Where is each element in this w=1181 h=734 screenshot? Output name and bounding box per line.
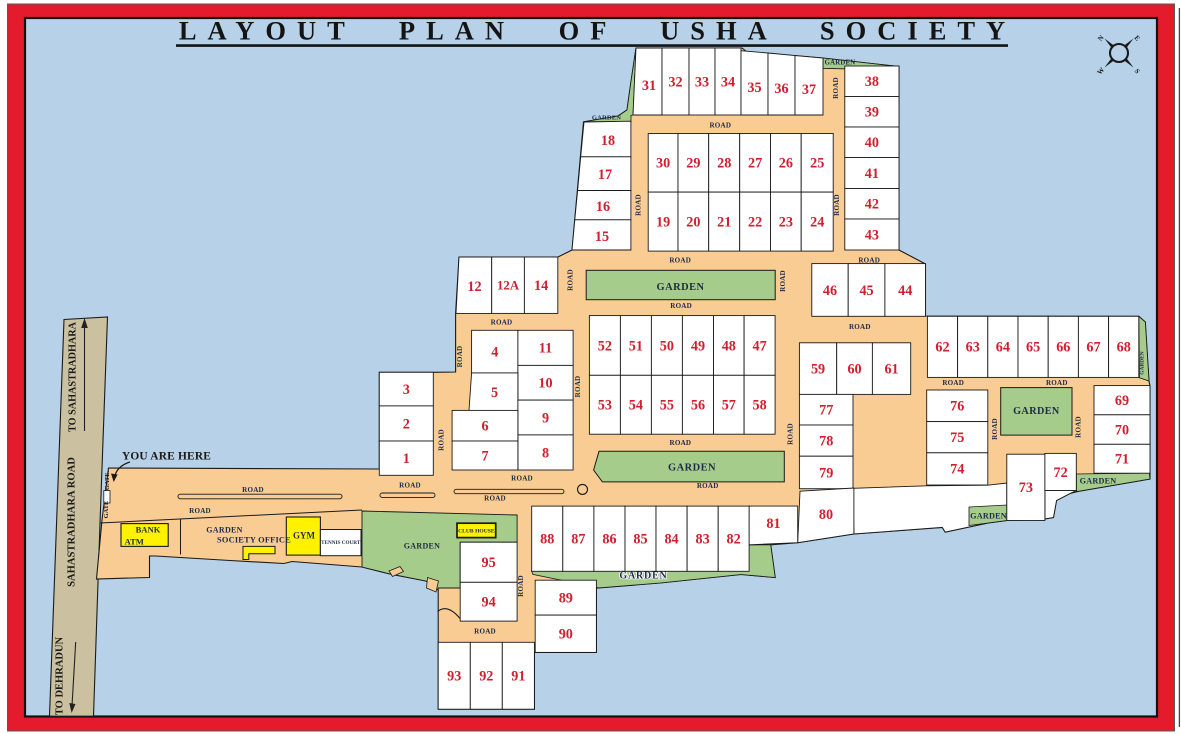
svg-text:ROAD: ROAD bbox=[942, 379, 964, 387]
svg-text:86: 86 bbox=[602, 532, 616, 548]
svg-text:55: 55 bbox=[660, 398, 674, 414]
svg-text:ROAD: ROAD bbox=[574, 376, 582, 398]
svg-text:66: 66 bbox=[1056, 340, 1070, 356]
svg-text:56: 56 bbox=[691, 398, 705, 414]
svg-text:SOCIETY OFFICE: SOCIETY OFFICE bbox=[217, 536, 291, 545]
svg-text:LAYOUT PLAN OF USHA SOCIETY: LAYOUT PLAN OF USHA SOCIETY bbox=[179, 16, 1016, 46]
svg-text:2: 2 bbox=[403, 416, 410, 432]
svg-text:ROAD: ROAD bbox=[484, 495, 506, 503]
svg-text:84: 84 bbox=[664, 532, 678, 548]
svg-text:TO DEHRADUN: TO DEHRADUN bbox=[55, 636, 66, 715]
svg-text:7: 7 bbox=[481, 448, 488, 464]
svg-text:GARDEN: GARDEN bbox=[1080, 477, 1117, 486]
svg-text:20: 20 bbox=[686, 214, 700, 230]
svg-text:TENNIS COURT: TENNIS COURT bbox=[321, 540, 361, 546]
svg-text:44: 44 bbox=[898, 283, 912, 299]
svg-text:GATE.: GATE. bbox=[104, 470, 111, 490]
svg-text:82: 82 bbox=[727, 532, 741, 548]
svg-text:91: 91 bbox=[511, 669, 525, 685]
svg-text:59: 59 bbox=[811, 361, 825, 377]
svg-text:ROAD: ROAD bbox=[832, 77, 840, 99]
svg-text:ROAD: ROAD bbox=[670, 439, 692, 447]
svg-text:29: 29 bbox=[686, 156, 700, 172]
svg-text:ROAD: ROAD bbox=[634, 194, 642, 216]
svg-text:54: 54 bbox=[629, 398, 643, 414]
svg-text:27: 27 bbox=[748, 156, 762, 172]
svg-text:18: 18 bbox=[601, 133, 615, 149]
svg-text:21: 21 bbox=[717, 214, 731, 230]
svg-text:26: 26 bbox=[779, 156, 793, 172]
svg-text:3: 3 bbox=[403, 382, 410, 398]
svg-text:23: 23 bbox=[779, 214, 793, 230]
svg-text:15: 15 bbox=[595, 229, 609, 245]
svg-text:ROAD: ROAD bbox=[399, 482, 421, 490]
svg-text:GARDEN: GARDEN bbox=[656, 282, 704, 293]
svg-text:64: 64 bbox=[996, 340, 1010, 356]
svg-text:48: 48 bbox=[722, 338, 736, 354]
svg-text:ROAD: ROAD bbox=[242, 486, 264, 494]
svg-text:50: 50 bbox=[660, 338, 674, 354]
svg-text:74: 74 bbox=[950, 462, 964, 478]
svg-text:60: 60 bbox=[847, 361, 861, 377]
svg-text:73: 73 bbox=[1019, 480, 1033, 496]
svg-text:71: 71 bbox=[1115, 452, 1129, 468]
svg-text:ROAD: ROAD bbox=[511, 475, 533, 483]
svg-text:GARDEN: GARDEN bbox=[668, 463, 716, 474]
svg-text:22: 22 bbox=[748, 214, 762, 230]
svg-text:61: 61 bbox=[884, 361, 898, 377]
svg-text:ROAD: ROAD bbox=[697, 482, 719, 490]
svg-text:19: 19 bbox=[656, 214, 670, 230]
svg-text:57: 57 bbox=[722, 398, 736, 414]
svg-text:GARDEN: GARDEN bbox=[970, 511, 1007, 520]
svg-text:89: 89 bbox=[559, 590, 573, 606]
svg-text:80: 80 bbox=[819, 507, 833, 523]
svg-text:ROAD: ROAD bbox=[566, 269, 574, 291]
svg-text:ROAD: ROAD bbox=[517, 575, 525, 597]
svg-text:GARDEN: GARDEN bbox=[1139, 351, 1145, 374]
svg-text:95: 95 bbox=[482, 555, 496, 571]
svg-text:17: 17 bbox=[598, 167, 612, 183]
svg-text:11: 11 bbox=[539, 341, 552, 357]
svg-text:GARDEN: GARDEN bbox=[404, 542, 440, 551]
svg-text:6: 6 bbox=[481, 419, 488, 435]
svg-text:ROAD: ROAD bbox=[849, 323, 871, 331]
svg-text:70: 70 bbox=[1115, 422, 1129, 438]
svg-text:62: 62 bbox=[935, 340, 949, 356]
svg-text:49: 49 bbox=[691, 338, 705, 354]
svg-text:47: 47 bbox=[753, 338, 767, 354]
svg-text:78: 78 bbox=[819, 433, 833, 449]
svg-text:5: 5 bbox=[491, 385, 498, 401]
svg-text:ROAD: ROAD bbox=[474, 628, 496, 636]
svg-text:ROAD: ROAD bbox=[456, 346, 464, 368]
svg-text:39: 39 bbox=[865, 105, 879, 121]
svg-text:93: 93 bbox=[447, 669, 461, 685]
svg-text:85: 85 bbox=[633, 532, 647, 548]
svg-text:53: 53 bbox=[598, 398, 612, 414]
svg-text:33: 33 bbox=[695, 74, 709, 90]
svg-text:42: 42 bbox=[865, 197, 879, 213]
svg-text:94: 94 bbox=[482, 595, 496, 611]
svg-text:ROAD: ROAD bbox=[438, 429, 446, 451]
svg-text:46: 46 bbox=[823, 283, 837, 299]
svg-text:GARDEN: GARDEN bbox=[825, 60, 856, 67]
svg-text:37: 37 bbox=[802, 82, 816, 98]
svg-text:ROAD: ROAD bbox=[1046, 379, 1068, 387]
svg-text:ROAD: ROAD bbox=[491, 318, 513, 326]
svg-text:67: 67 bbox=[1086, 340, 1100, 356]
svg-text:ROAD: ROAD bbox=[670, 302, 692, 310]
svg-text:BANK: BANK bbox=[136, 524, 161, 534]
svg-text:25: 25 bbox=[810, 156, 824, 172]
svg-text:38: 38 bbox=[865, 74, 879, 90]
svg-text:30: 30 bbox=[656, 156, 670, 172]
svg-text:40: 40 bbox=[865, 135, 879, 151]
svg-text:76: 76 bbox=[950, 399, 964, 415]
svg-text:ROAD: ROAD bbox=[833, 194, 841, 216]
svg-text:68: 68 bbox=[1117, 340, 1131, 356]
svg-text:12A: 12A bbox=[497, 279, 520, 293]
svg-text:TO SAHASTRADHARA: TO SAHASTRADHARA bbox=[68, 321, 79, 432]
svg-text:14: 14 bbox=[534, 278, 548, 294]
svg-text:41: 41 bbox=[865, 166, 879, 182]
svg-text:32: 32 bbox=[668, 74, 682, 90]
svg-text:YOU ARE HERE: YOU ARE HERE bbox=[122, 451, 211, 463]
svg-text:16: 16 bbox=[596, 199, 610, 215]
svg-text:ROAD: ROAD bbox=[991, 418, 999, 440]
svg-text:31: 31 bbox=[642, 78, 656, 94]
svg-text:69: 69 bbox=[1115, 393, 1129, 409]
svg-text:65: 65 bbox=[1026, 340, 1040, 356]
svg-text:87: 87 bbox=[571, 532, 585, 548]
svg-text:83: 83 bbox=[696, 532, 710, 548]
svg-text:12: 12 bbox=[467, 279, 481, 295]
svg-text:63: 63 bbox=[966, 340, 980, 356]
svg-text:8: 8 bbox=[542, 445, 549, 461]
svg-text:10: 10 bbox=[538, 376, 552, 392]
svg-text:43: 43 bbox=[865, 227, 879, 243]
svg-text:77: 77 bbox=[819, 403, 833, 419]
svg-text:28: 28 bbox=[717, 156, 731, 172]
svg-text:ROAD: ROAD bbox=[1075, 416, 1083, 438]
svg-text:ROAD: ROAD bbox=[669, 256, 691, 264]
svg-text:GATE: GATE bbox=[103, 501, 110, 519]
svg-text:79: 79 bbox=[819, 465, 833, 481]
svg-text:4: 4 bbox=[491, 344, 498, 360]
svg-text:CLUB HOUSE: CLUB HOUSE bbox=[458, 529, 495, 535]
svg-text:ROAD: ROAD bbox=[709, 122, 731, 130]
svg-text:GYM: GYM bbox=[293, 531, 316, 541]
svg-text:GARDEN: GARDEN bbox=[206, 525, 242, 534]
svg-text:52: 52 bbox=[598, 338, 612, 354]
svg-text:ROAD: ROAD bbox=[787, 423, 795, 445]
svg-text:GARDEN: GARDEN bbox=[619, 571, 667, 582]
svg-text:90: 90 bbox=[559, 627, 573, 643]
svg-text:24: 24 bbox=[810, 214, 824, 230]
svg-text:88: 88 bbox=[540, 532, 554, 548]
svg-text:81: 81 bbox=[766, 516, 780, 532]
svg-text:92: 92 bbox=[479, 669, 493, 685]
svg-text:58: 58 bbox=[753, 398, 767, 414]
svg-text:ROAD: ROAD bbox=[189, 507, 211, 515]
svg-text:36: 36 bbox=[774, 81, 788, 97]
svg-text:GARDEN: GARDEN bbox=[1013, 406, 1060, 417]
svg-text:ROAD: ROAD bbox=[858, 256, 880, 264]
svg-text:34: 34 bbox=[721, 74, 735, 90]
svg-text:72: 72 bbox=[1054, 465, 1068, 481]
svg-text:1: 1 bbox=[403, 451, 410, 467]
svg-text:9: 9 bbox=[542, 410, 549, 426]
svg-text:GARDEN: GARDEN bbox=[592, 114, 621, 121]
svg-text:35: 35 bbox=[747, 80, 761, 96]
svg-text:75: 75 bbox=[950, 430, 964, 446]
svg-text:51: 51 bbox=[629, 338, 643, 354]
svg-text:SAHASTRADHARA ROAD: SAHASTRADHARA ROAD bbox=[67, 457, 78, 587]
svg-text:ATM: ATM bbox=[125, 536, 144, 546]
svg-text:ROAD: ROAD bbox=[779, 270, 787, 292]
svg-text:45: 45 bbox=[859, 283, 873, 299]
